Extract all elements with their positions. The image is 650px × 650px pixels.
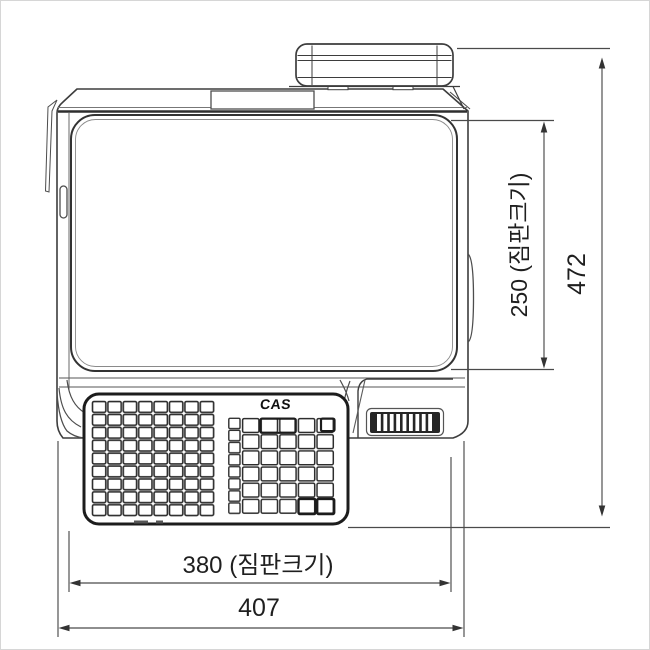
scale-technical-drawing-page: CAS 250 (짐판크기) 472 (0, 0, 650, 650)
dimension-label-250: 250 (짐판크기) (506, 173, 532, 318)
arrowhead-down (599, 506, 606, 517)
arrowhead-up (599, 58, 606, 69)
arrowhead-left (70, 580, 81, 587)
weighing-platter (71, 115, 457, 371)
left-side-slot (60, 186, 67, 218)
right-side-bump (468, 254, 474, 342)
panel-bottom-tick (156, 521, 163, 524)
preset-keypad (92, 401, 215, 517)
paper-outlet-ribs (370, 412, 440, 433)
arrowhead-left (59, 625, 70, 632)
cas-brand-logo: CAS (259, 396, 292, 412)
dimension-label-407: 407 (238, 594, 280, 622)
arrowhead-right (440, 580, 451, 587)
dimension-label-380: 380 (짐판크기) (182, 552, 333, 579)
arrowhead-down (541, 358, 548, 369)
function-keypad-narrow-column (228, 418, 241, 515)
top-seam-rectangle (211, 91, 314, 109)
function-keypad (228, 418, 335, 515)
panel-bottom-tick (134, 521, 148, 524)
arrowhead-right (453, 625, 464, 632)
dimension-label-472: 472 (563, 253, 591, 295)
arrowhead-up (541, 122, 548, 133)
scale-top-view-drawing: CAS 250 (짐판크기) 472 (1, 1, 650, 650)
